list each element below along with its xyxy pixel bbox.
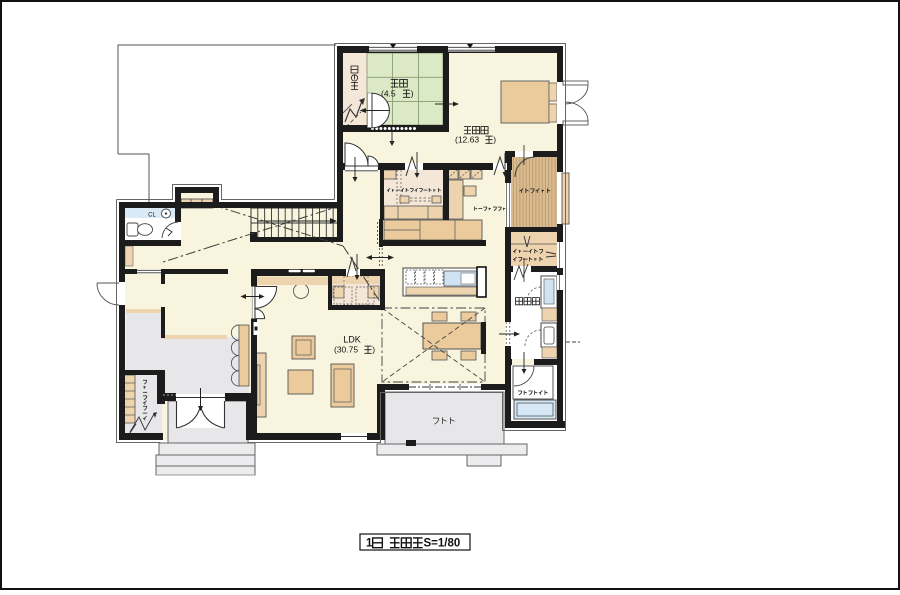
svg-text:CL: CL: [148, 213, 156, 219]
svg-text:(30.75: (30.75: [334, 345, 358, 355]
svg-text:): ): [372, 345, 375, 355]
svg-text:(4.5: (4.5: [381, 89, 396, 99]
svg-text:): ): [411, 89, 414, 99]
svg-text:): ): [493, 135, 496, 145]
svg-text:S=1/80: S=1/80: [424, 538, 461, 550]
svg-text:LDK: LDK: [343, 335, 361, 345]
svg-text:(12.63: (12.63: [455, 135, 479, 145]
svg-text:1: 1: [366, 538, 373, 550]
